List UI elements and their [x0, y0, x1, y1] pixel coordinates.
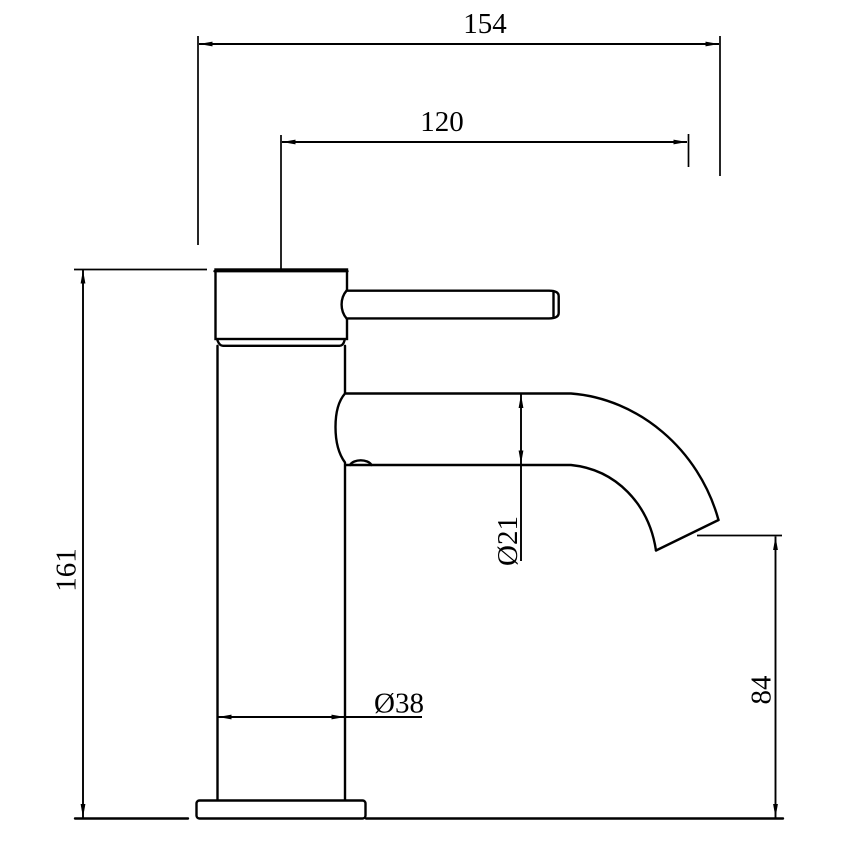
spout-root-bulge: [336, 394, 346, 463]
technical-drawing: 154 120 161 Ø21 Ø38 84: [0, 0, 858, 856]
arrowhead: [218, 715, 232, 720]
dim-spout-diameter: Ø21: [492, 395, 524, 566]
base-plate: [197, 801, 366, 819]
dim-spout-diameter-label: Ø21: [492, 516, 524, 566]
dim-body-diameter-label: Ø38: [374, 688, 424, 720]
handle-lever: [342, 291, 559, 319]
dim-overall-height-label: 161: [51, 548, 83, 592]
arrowhead: [81, 270, 86, 284]
faucet-outline: [75, 270, 783, 819]
dim-body-diameter: Ø38: [218, 688, 424, 720]
arrowhead: [282, 140, 296, 145]
arrowhead: [519, 395, 524, 409]
neck-ring: [218, 341, 345, 346]
dim-spout-reach: 120: [281, 106, 689, 269]
arrowhead: [332, 715, 346, 720]
arrowhead: [81, 804, 86, 818]
arrowhead: [773, 804, 778, 818]
spout-top-profile: [346, 394, 719, 521]
dim-overall-reach-label: 154: [463, 8, 507, 40]
dim-spout-reach-label: 120: [420, 106, 464, 138]
cap-outline: [216, 270, 348, 340]
dim-outlet-height-label: 84: [746, 675, 778, 705]
arrowhead: [519, 451, 524, 465]
dim-overall-height: 161: [51, 270, 208, 818]
dim-outlet-height: 84: [697, 536, 782, 818]
arrowhead: [199, 42, 213, 47]
arrowhead: [706, 42, 720, 47]
arrowhead: [674, 140, 688, 145]
arrowhead: [773, 537, 778, 551]
